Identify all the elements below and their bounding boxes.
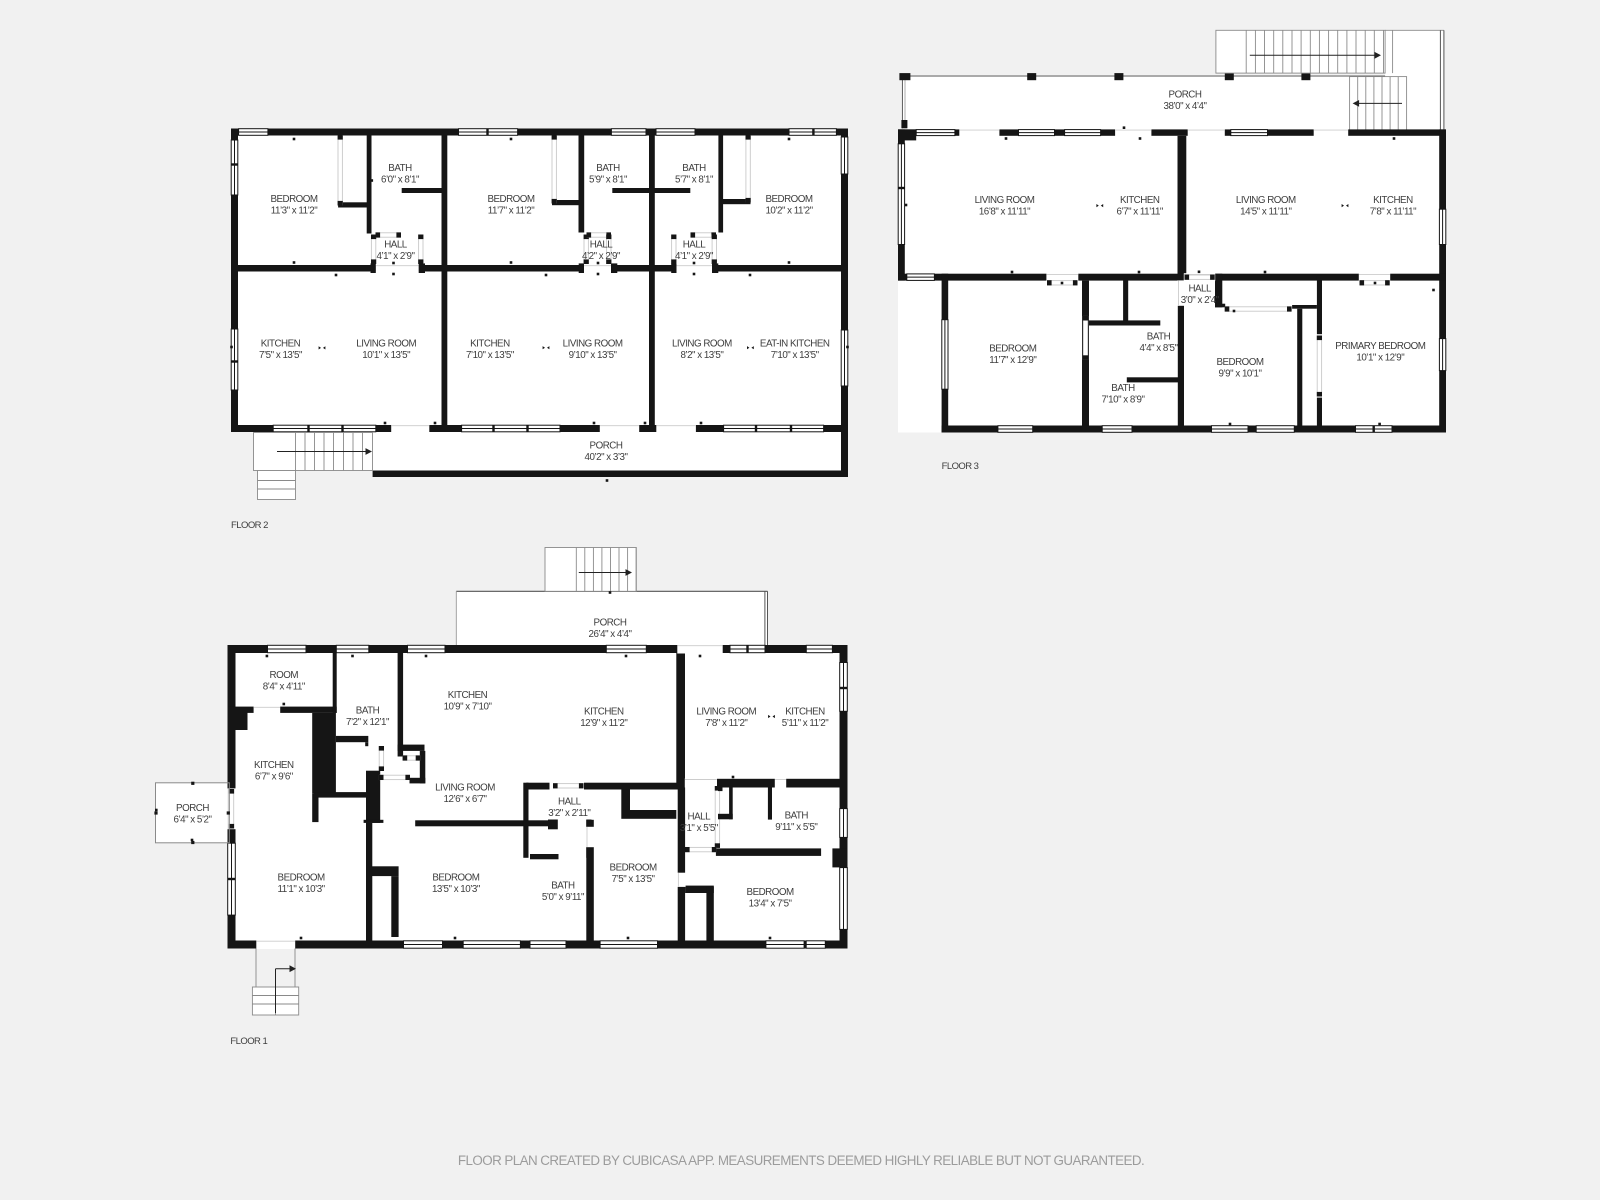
svg-text:BEDROOM: BEDROOM xyxy=(765,194,812,205)
svg-text:BEDROOM: BEDROOM xyxy=(989,344,1036,355)
svg-text:BEDROOM: BEDROOM xyxy=(747,887,794,898)
svg-text:KITCHEN: KITCHEN xyxy=(261,339,301,350)
svg-text:11’7" x 11’2": 11’7" x 11’2" xyxy=(488,206,535,217)
svg-text:9’11" x 5’5": 9’11" x 5’5" xyxy=(775,822,818,833)
svg-text:9’9" x 10’1": 9’9" x 10’1" xyxy=(1219,369,1263,380)
svg-text:BEDROOM: BEDROOM xyxy=(432,872,479,883)
svg-text:BEDROOM: BEDROOM xyxy=(270,194,317,205)
svg-text:HALL: HALL xyxy=(688,811,712,822)
svg-text:FLOOR 3: FLOOR 3 xyxy=(942,461,979,472)
svg-text:BEDROOM: BEDROOM xyxy=(1216,357,1263,368)
svg-text:7’2" x 12’1": 7’2" x 12’1" xyxy=(346,717,390,728)
svg-text:FLOOR 1: FLOOR 1 xyxy=(230,1036,267,1047)
svg-text:5’9" x 8’1": 5’9" x 8’1" xyxy=(589,175,628,186)
svg-text:7’10" x 8’9": 7’10" x 8’9" xyxy=(1102,395,1146,406)
svg-text:BATH: BATH xyxy=(388,163,412,174)
svg-text:9’10" x 13’5": 9’10" x 13’5" xyxy=(569,350,618,361)
svg-text:26’4" x 4’4": 26’4" x 4’4" xyxy=(589,629,633,640)
svg-text:6’4" x 5’2": 6’4" x 5’2" xyxy=(174,815,213,826)
svg-text:13’5" x 10’3": 13’5" x 10’3" xyxy=(432,884,481,895)
svg-text:LIVING ROOM: LIVING ROOM xyxy=(563,339,623,350)
svg-text:HALL: HALL xyxy=(683,240,707,251)
svg-text:KITCHEN: KITCHEN xyxy=(448,690,488,701)
svg-text:LIVING ROOM: LIVING ROOM xyxy=(435,783,495,794)
svg-text:10’9" x 7’10": 10’9" x 7’10" xyxy=(444,702,493,713)
svg-text:KITCHEN: KITCHEN xyxy=(584,706,624,717)
svg-text:4’2" x 2’9": 4’2" x 2’9" xyxy=(582,251,621,262)
svg-text:HALL: HALL xyxy=(1188,284,1212,295)
svg-text:12’6" x 6’7": 12’6" x 6’7" xyxy=(444,794,488,805)
svg-text:4’1" x 2’9": 4’1" x 2’9" xyxy=(675,251,714,262)
svg-text:7’5" x 13’5": 7’5" x 13’5" xyxy=(612,874,656,885)
svg-text:PORCH: PORCH xyxy=(590,441,623,452)
svg-text:ROOM: ROOM xyxy=(270,670,299,681)
svg-text:KITCHEN: KITCHEN xyxy=(785,706,825,717)
svg-text:BATH: BATH xyxy=(1111,383,1135,394)
svg-text:BATH: BATH xyxy=(682,163,706,174)
svg-text:KITCHEN: KITCHEN xyxy=(1373,195,1413,206)
svg-text:PRIMARY BEDROOM: PRIMARY BEDROOM xyxy=(1335,341,1425,352)
svg-text:7’10" x 13’5": 7’10" x 13’5" xyxy=(466,350,515,361)
svg-text:3’2" x 2’11": 3’2" x 2’11" xyxy=(548,808,591,819)
svg-text:11’1" x 10’3": 11’1" x 10’3" xyxy=(278,884,326,895)
svg-text:40’2" x 3’3": 40’2" x 3’3" xyxy=(585,452,629,463)
svg-text:13’4" x 7’5": 13’4" x 7’5" xyxy=(749,899,793,910)
svg-text:BATH: BATH xyxy=(1147,332,1171,343)
svg-text:14’5" x 11’11": 14’5" x 11’11" xyxy=(1240,207,1292,218)
svg-text:KITCHEN: KITCHEN xyxy=(1120,195,1160,206)
svg-text:7’8" x 11’11": 7’8" x 11’11" xyxy=(1370,207,1417,218)
svg-text:7’8" x 11’2": 7’8" x 11’2" xyxy=(705,718,748,729)
svg-text:FLOOR 2: FLOOR 2 xyxy=(231,520,268,531)
svg-text:BEDROOM: BEDROOM xyxy=(610,863,657,874)
svg-text:3’0" x 2’4": 3’0" x 2’4" xyxy=(1181,295,1220,306)
svg-text:8’2" x 13’5": 8’2" x 13’5" xyxy=(680,350,724,361)
svg-text:KITCHEN: KITCHEN xyxy=(254,760,294,771)
svg-text:FLOOR PLAN CREATED BY CUBICASA: FLOOR PLAN CREATED BY CUBICASA APP. MEAS… xyxy=(458,1153,1144,1168)
svg-text:LIVING ROOM: LIVING ROOM xyxy=(696,706,756,717)
svg-text:4’4" x 8’5": 4’4" x 8’5" xyxy=(1140,343,1179,354)
svg-text:LIVING ROOM: LIVING ROOM xyxy=(975,195,1035,206)
svg-text:7’5" x 13’5": 7’5" x 13’5" xyxy=(259,350,303,361)
svg-text:12’9" x 11’2": 12’9" x 11’2" xyxy=(580,718,628,729)
svg-text:16’8" x 11’11": 16’8" x 11’11" xyxy=(979,207,1031,218)
svg-text:10’1" x 13’5": 10’1" x 13’5" xyxy=(362,350,411,361)
svg-text:BATH: BATH xyxy=(785,811,809,822)
svg-text:BATH: BATH xyxy=(551,881,575,892)
svg-text:6’7" x 9’6": 6’7" x 9’6" xyxy=(255,772,294,783)
svg-text:4’1" x 2’9": 4’1" x 2’9" xyxy=(377,251,416,262)
svg-text:6’0" x 8’1": 6’0" x 8’1" xyxy=(381,175,420,186)
svg-text:HALL: HALL xyxy=(590,240,614,251)
svg-text:LIVING ROOM: LIVING ROOM xyxy=(672,339,732,350)
svg-text:11’7" x 12’9": 11’7" x 12’9" xyxy=(989,355,1037,366)
svg-text:LIVING ROOM: LIVING ROOM xyxy=(1236,195,1296,206)
svg-text:6’7" x 11’11": 6’7" x 11’11" xyxy=(1117,207,1164,218)
svg-text:BATH: BATH xyxy=(356,706,380,717)
svg-text:5’11" x 11’2": 5’11" x 11’2" xyxy=(782,718,829,729)
svg-text:PORCH: PORCH xyxy=(594,618,627,629)
svg-text:10’2" x 11’2": 10’2" x 11’2" xyxy=(765,206,813,217)
svg-text:10’1" x 12’9": 10’1" x 12’9" xyxy=(1356,353,1405,364)
svg-text:LIVING ROOM: LIVING ROOM xyxy=(356,339,416,350)
svg-text:PORCH: PORCH xyxy=(176,803,209,814)
svg-text:8’4" x 4’11": 8’4" x 4’11" xyxy=(263,682,306,693)
svg-text:BEDROOM: BEDROOM xyxy=(487,194,534,205)
svg-text:HALL: HALL xyxy=(558,797,582,808)
svg-text:BATH: BATH xyxy=(596,163,620,174)
svg-text:PORCH: PORCH xyxy=(1169,90,1202,101)
svg-text:11’3" x 11’2": 11’3" x 11’2" xyxy=(271,206,318,217)
svg-text:3’1" x 5’5": 3’1" x 5’5" xyxy=(680,823,719,834)
svg-text:5’0" x 9’11": 5’0" x 9’11" xyxy=(542,892,585,903)
svg-text:38’0" x 4’4": 38’0" x 4’4" xyxy=(1164,101,1208,112)
svg-text:EAT-IN KITCHEN: EAT-IN KITCHEN xyxy=(760,339,830,350)
svg-text:HALL: HALL xyxy=(384,240,408,251)
svg-text:5’7" x 8’1": 5’7" x 8’1" xyxy=(675,175,714,186)
svg-text:BEDROOM: BEDROOM xyxy=(278,872,325,883)
svg-text:7’10" x 13’5": 7’10" x 13’5" xyxy=(771,350,820,361)
svg-text:KITCHEN: KITCHEN xyxy=(470,339,510,350)
